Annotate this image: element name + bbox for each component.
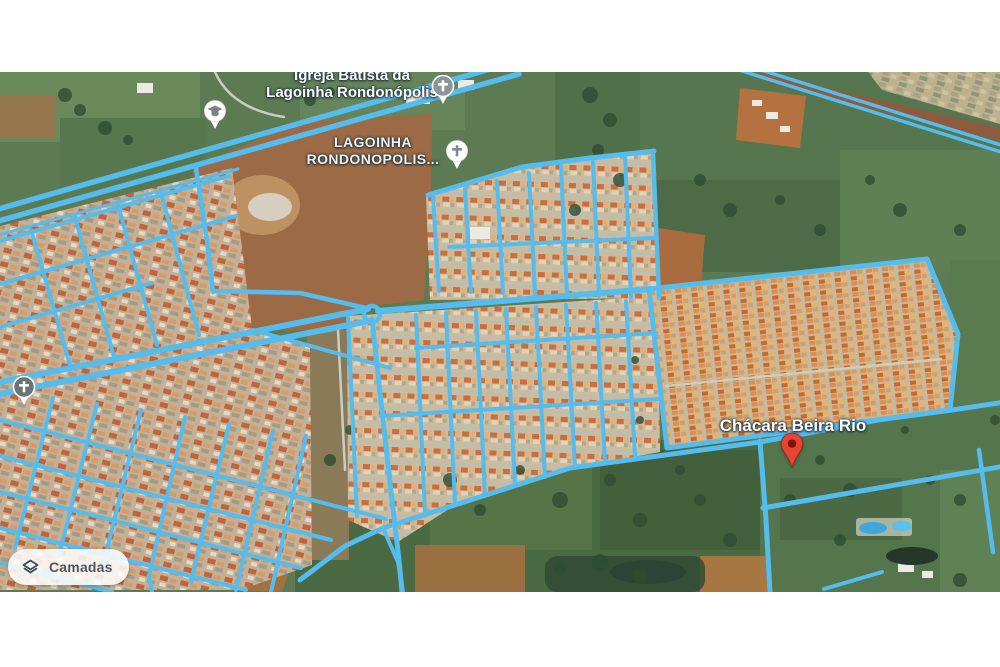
satellite-layer [0, 72, 1000, 592]
terrain-layer [0, 72, 1000, 592]
screenshot-root: Igreja Batista da Lagoinha Rondonópolis … [0, 0, 1000, 667]
neighborhood-label-lagoinha[interactable]: LAGOINHA RONDONOPOLIS... [307, 134, 440, 168]
neighborhood-label-line1: LAGOINHA [307, 134, 440, 151]
neighborhood-label-line2: RONDONOPOLIS... [307, 151, 440, 168]
map-viewport[interactable]: Igreja Batista da Lagoinha Rondonópolis … [0, 72, 1000, 592]
poi-label-igreja-batista[interactable]: Igreja Batista da Lagoinha Rondonópolis [266, 72, 438, 101]
layers-button-label: Camadas [49, 559, 113, 575]
church-icon[interactable] [431, 75, 455, 105]
layers-icon [21, 558, 40, 577]
poi-label-line1: Igreja Batista da [266, 72, 438, 84]
church-icon[interactable] [12, 376, 36, 406]
poi-label-line2: Lagoinha Rondonópolis [266, 84, 438, 101]
school-icon[interactable] [203, 100, 227, 130]
top-white-band [0, 0, 1000, 72]
church-icon[interactable] [445, 140, 469, 170]
layers-button[interactable]: Camadas [8, 549, 129, 585]
bottom-white-band [0, 592, 1000, 667]
destination-pin-icon[interactable] [779, 432, 805, 468]
